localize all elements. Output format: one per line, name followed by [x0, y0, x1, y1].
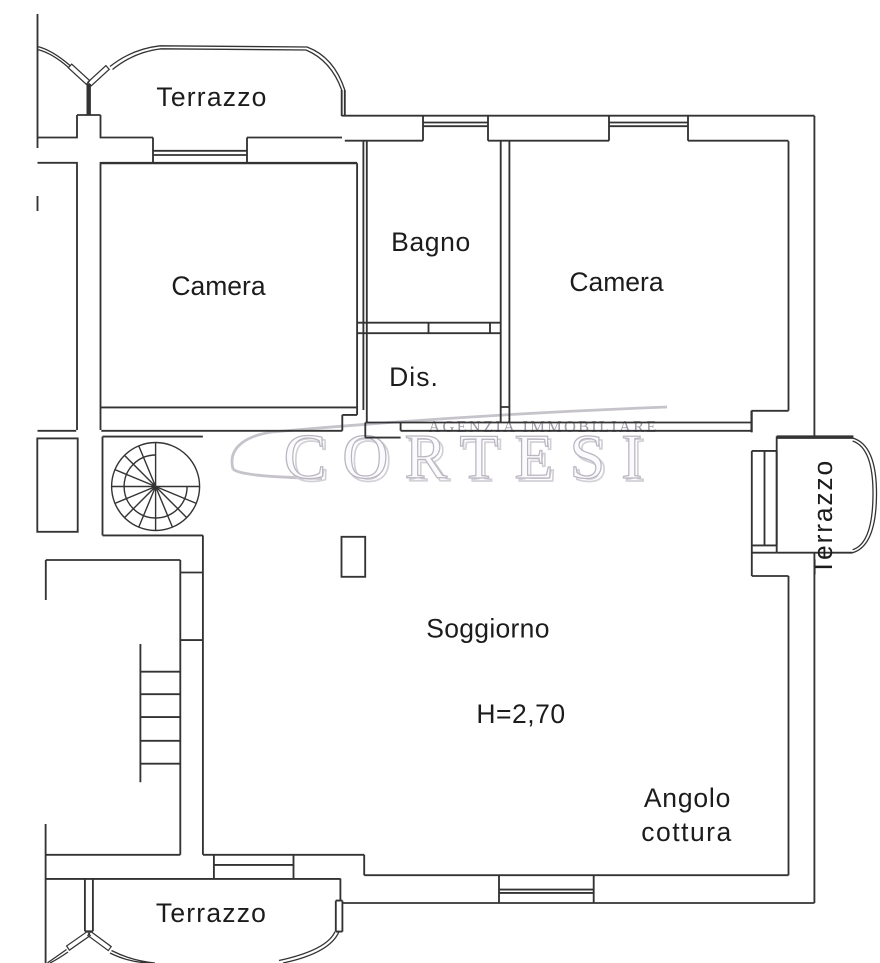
svg-text:Bagno: Bagno [391, 227, 471, 257]
svg-text:Terrazzo: Terrazzo [156, 898, 267, 928]
svg-text:Camera: Camera [171, 271, 266, 301]
svg-text:H=2,70: H=2,70 [476, 699, 565, 729]
svg-text:Terrazzo: Terrazzo [156, 82, 267, 112]
svg-text:Dis.: Dis. [389, 362, 439, 392]
svg-text:Terrazzo: Terrazzo [808, 459, 838, 575]
svg-text:Angolo: Angolo [644, 783, 731, 813]
svg-text:cottura: cottura [641, 817, 733, 847]
svg-text:Camera: Camera [569, 267, 664, 297]
svg-text:Soggiorno: Soggiorno [426, 614, 550, 644]
